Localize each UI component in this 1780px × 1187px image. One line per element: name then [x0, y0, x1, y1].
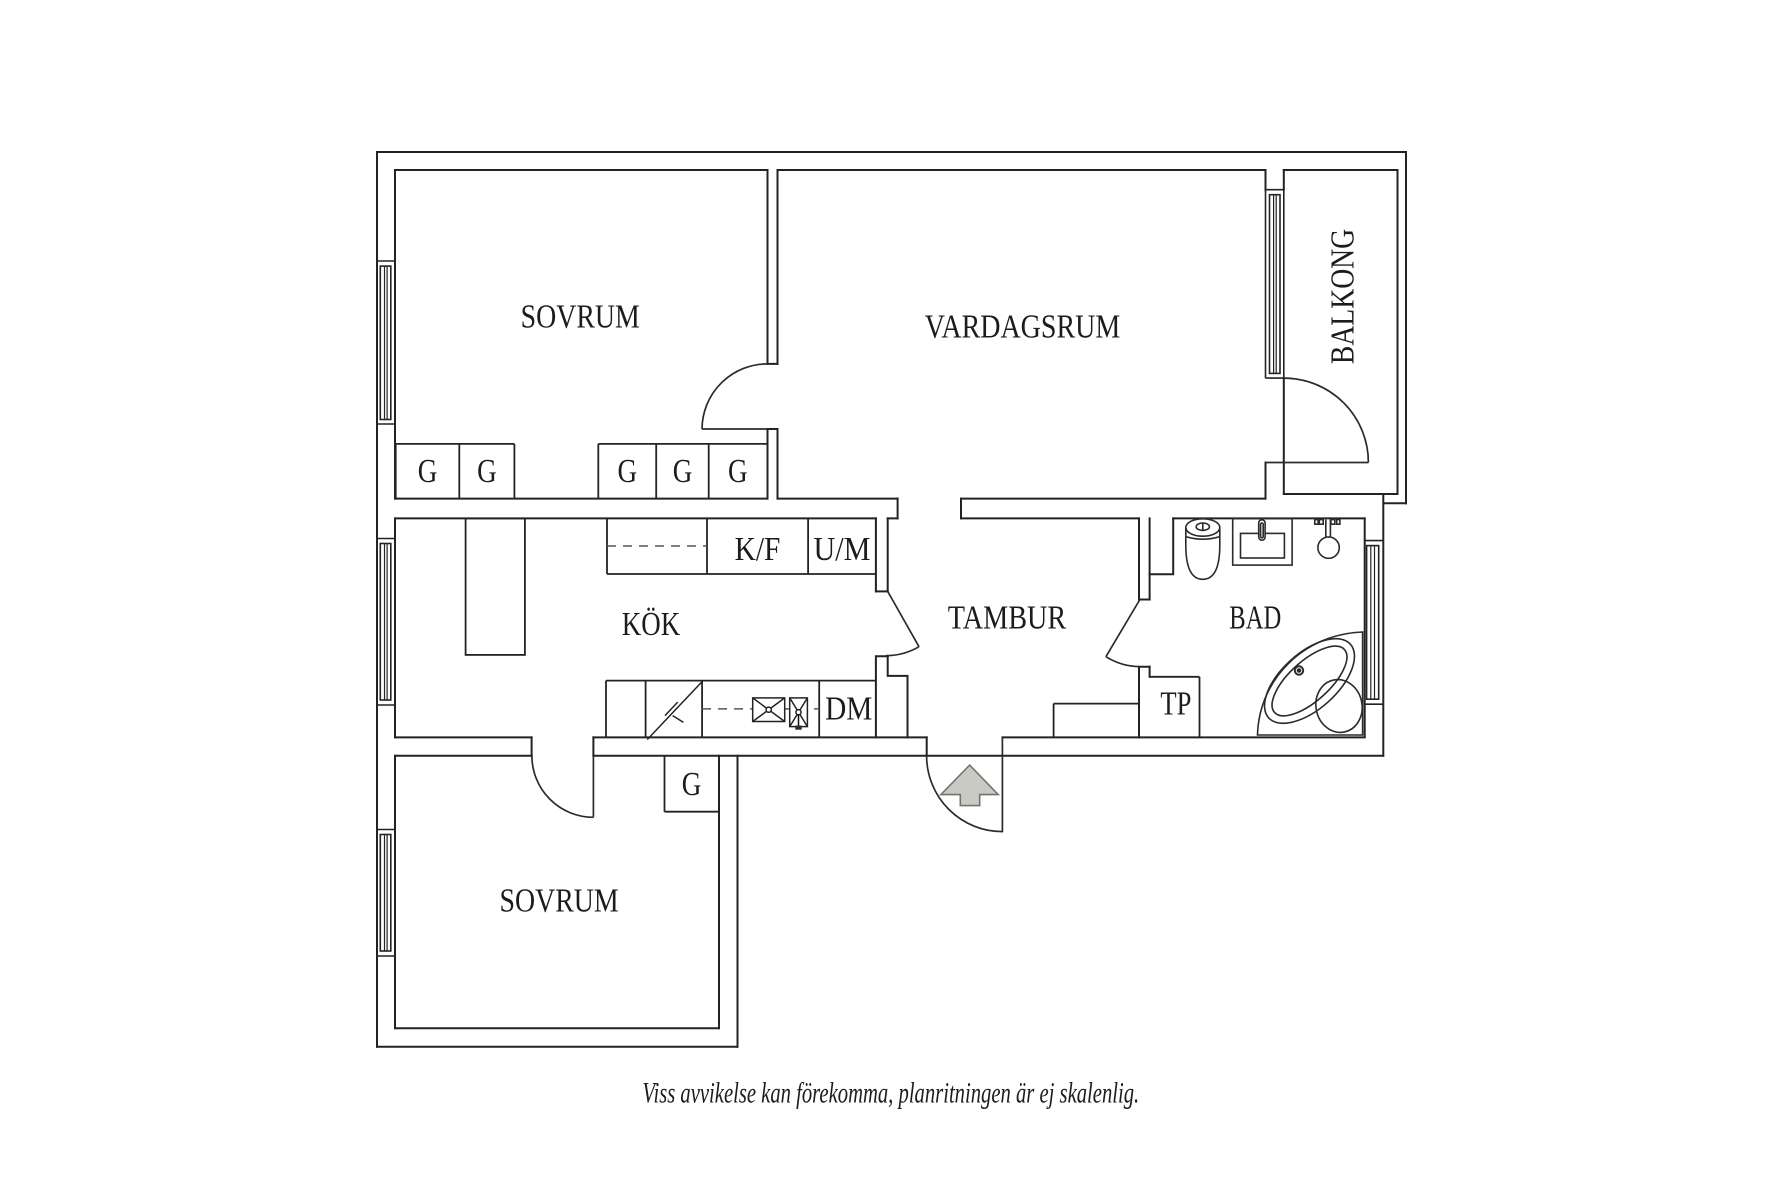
svg-text:G: G: [618, 453, 638, 490]
svg-text:SOVRUM: SOVRUM: [500, 882, 619, 919]
svg-text:G: G: [477, 453, 497, 490]
svg-text:G: G: [418, 453, 438, 490]
svg-text:TP: TP: [1160, 686, 1191, 723]
svg-text:SOVRUM: SOVRUM: [521, 298, 640, 335]
svg-text:G: G: [728, 453, 748, 490]
svg-text:DM: DM: [825, 691, 872, 728]
svg-text:U/M: U/M: [814, 531, 871, 568]
svg-text:Viss avvikelse kan förekomma,: Viss avvikelse kan förekomma, planritnin…: [642, 1077, 1139, 1110]
svg-text:G: G: [673, 453, 693, 490]
svg-text:TAMBUR: TAMBUR: [948, 599, 1067, 636]
svg-text:K/F: K/F: [735, 531, 781, 568]
svg-text:G: G: [682, 766, 702, 803]
svg-text:BAD: BAD: [1229, 599, 1281, 636]
svg-text:VARDAGSRUM: VARDAGSRUM: [925, 308, 1121, 345]
svg-text:KÖK: KÖK: [622, 606, 681, 643]
svg-text:BALKONG: BALKONG: [1325, 229, 1362, 364]
